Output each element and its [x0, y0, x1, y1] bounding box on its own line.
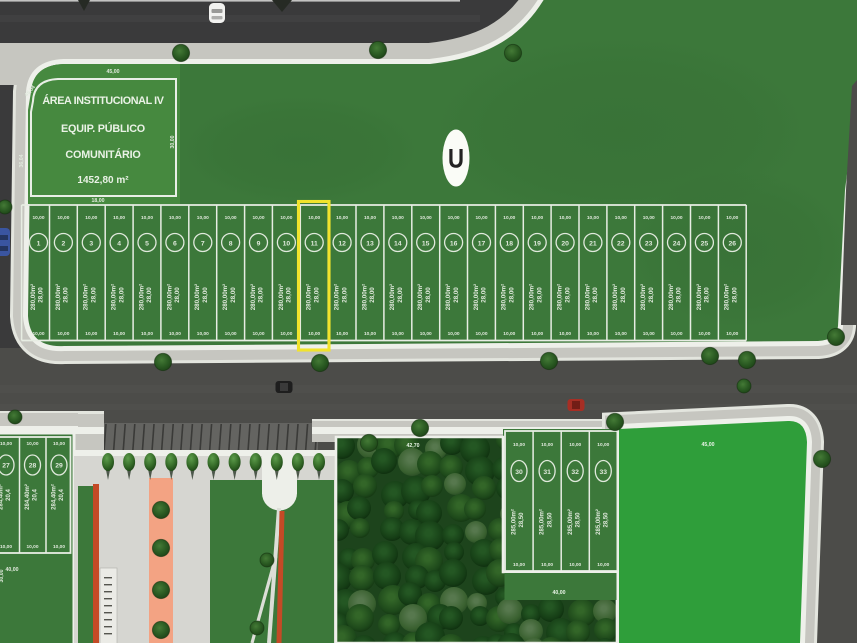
svg-text:28,00: 28,00 — [118, 287, 125, 303]
svg-text:30,00: 30,00 — [0, 569, 5, 582]
svg-text:280,00m²: 280,00m² — [612, 284, 619, 311]
svg-text:280,00m²: 280,00m² — [557, 284, 564, 311]
svg-text:280,00m²: 280,00m² — [584, 284, 591, 311]
svg-text:20,4: 20,4 — [6, 489, 12, 501]
svg-text:26: 26 — [729, 240, 737, 247]
svg-text:280,00m²: 280,00m² — [222, 284, 229, 311]
svg-text:10,00: 10,00 — [308, 331, 320, 337]
svg-text:28,00: 28,00 — [146, 287, 153, 303]
svg-text:24: 24 — [673, 240, 681, 247]
svg-text:10,00: 10,00 — [448, 331, 460, 337]
svg-text:10,00: 10,00 — [475, 331, 487, 337]
svg-text:25: 25 — [701, 240, 709, 247]
svg-text:280,00m²: 280,00m² — [306, 284, 313, 311]
svg-text:280,00m²: 280,00m² — [501, 284, 508, 311]
svg-text:280,00m²: 280,00m² — [278, 284, 285, 311]
svg-text:45,00: 45,00 — [702, 442, 715, 448]
svg-text:10,00: 10,00 — [280, 331, 292, 337]
svg-text:10,00: 10,00 — [252, 215, 264, 221]
svg-text:28,00: 28,00 — [63, 287, 70, 303]
svg-text:28,00: 28,00 — [676, 287, 683, 303]
svg-text:10,00: 10,00 — [559, 331, 571, 337]
svg-text:36,04: 36,04 — [19, 154, 25, 167]
svg-text:28,00: 28,00 — [453, 287, 460, 303]
svg-text:4: 4 — [117, 240, 121, 247]
svg-text:28,00: 28,00 — [91, 287, 98, 303]
svg-text:10,00: 10,00 — [141, 331, 153, 337]
svg-text:280,00m²: 280,00m² — [724, 284, 731, 311]
svg-text:10,00: 10,00 — [280, 215, 292, 221]
svg-text:40,00: 40,00 — [553, 590, 566, 596]
svg-text:28,00: 28,00 — [564, 287, 571, 303]
svg-text:10,00: 10,00 — [57, 215, 69, 221]
svg-text:280,00m²: 280,00m² — [111, 284, 118, 311]
svg-text:10,00: 10,00 — [392, 331, 404, 337]
svg-text:27: 27 — [2, 463, 10, 470]
svg-text:280,00m²: 280,00m² — [138, 284, 145, 311]
svg-text:10,00: 10,00 — [503, 215, 515, 221]
svg-text:28,00: 28,00 — [509, 287, 516, 303]
svg-text:10,00: 10,00 — [513, 442, 525, 448]
svg-text:10,00: 10,00 — [364, 215, 376, 221]
svg-text:10,00: 10,00 — [559, 215, 571, 221]
svg-text:280,00m²: 280,00m² — [473, 284, 480, 311]
svg-text:10,00: 10,00 — [85, 215, 97, 221]
svg-text:31: 31 — [543, 469, 551, 476]
svg-text:10,00: 10,00 — [252, 331, 264, 337]
svg-text:10,00: 10,00 — [503, 331, 515, 337]
svg-text:285,00m²: 285,00m² — [595, 509, 602, 535]
svg-text:28,00: 28,00 — [286, 287, 293, 303]
svg-text:10,00: 10,00 — [726, 215, 738, 221]
svg-text:28,00: 28,00 — [620, 287, 627, 303]
svg-text:10,00: 10,00 — [26, 441, 38, 447]
svg-text:28,00: 28,00 — [536, 287, 543, 303]
svg-text:14: 14 — [394, 240, 402, 247]
svg-text:20: 20 — [561, 240, 569, 247]
svg-text:10,00: 10,00 — [169, 215, 181, 221]
svg-text:10,00: 10,00 — [670, 331, 682, 337]
svg-text:20,4: 20,4 — [59, 489, 65, 501]
svg-text:10,00: 10,00 — [643, 215, 655, 221]
svg-text:28: 28 — [29, 463, 37, 470]
svg-text:10,00: 10,00 — [32, 215, 44, 221]
svg-text:10,00: 10,00 — [587, 215, 599, 221]
svg-text:10,00: 10,00 — [615, 215, 627, 221]
svg-text:8: 8 — [229, 240, 233, 247]
svg-text:10,00: 10,00 — [336, 331, 348, 337]
svg-text:10,00: 10,00 — [670, 215, 682, 221]
svg-text:280,00m²: 280,00m² — [194, 284, 201, 311]
svg-text:29: 29 — [55, 463, 63, 470]
svg-text:10,00: 10,00 — [53, 441, 65, 447]
svg-text:13: 13 — [366, 240, 374, 247]
svg-text:280,00m²: 280,00m² — [334, 284, 341, 311]
svg-text:1452,80 m²: 1452,80 m² — [77, 175, 129, 186]
svg-text:42,70: 42,70 — [407, 443, 420, 449]
svg-text:10,00: 10,00 — [57, 331, 69, 337]
svg-text:280,00m²: 280,00m² — [83, 284, 90, 311]
svg-text:10,00: 10,00 — [698, 331, 710, 337]
svg-text:28,50: 28,50 — [575, 512, 581, 528]
svg-text:6: 6 — [173, 240, 177, 247]
svg-text:15: 15 — [422, 240, 430, 247]
svg-text:10,00: 10,00 — [448, 215, 460, 221]
svg-text:28,00: 28,00 — [481, 287, 488, 303]
svg-text:1: 1 — [37, 240, 41, 247]
svg-text:280,00m²: 280,00m² — [30, 284, 37, 311]
svg-text:33: 33 — [600, 469, 608, 476]
svg-text:10,00: 10,00 — [32, 331, 44, 337]
svg-text:23: 23 — [645, 240, 653, 247]
svg-text:10,00: 10,00 — [336, 215, 348, 221]
svg-text:17: 17 — [478, 240, 486, 247]
svg-text:10,00: 10,00 — [569, 562, 581, 568]
svg-text:10,00: 10,00 — [85, 331, 97, 337]
svg-text:28,00: 28,00 — [704, 287, 711, 303]
svg-text:28,00: 28,00 — [258, 287, 265, 303]
svg-text:10: 10 — [283, 240, 291, 247]
svg-text:2: 2 — [62, 240, 66, 247]
svg-text:10,00: 10,00 — [698, 215, 710, 221]
svg-text:28,00: 28,00 — [313, 287, 320, 303]
svg-text:10,00: 10,00 — [615, 331, 627, 337]
svg-text:30,00: 30,00 — [170, 135, 176, 148]
svg-text:280,00m²: 280,00m² — [696, 284, 703, 311]
svg-text:45,00: 45,00 — [107, 69, 120, 75]
svg-text:32: 32 — [571, 469, 579, 476]
svg-text:9: 9 — [257, 240, 261, 247]
svg-text:10,00: 10,00 — [225, 215, 237, 221]
svg-text:10,00: 10,00 — [113, 215, 125, 221]
svg-text:10,00: 10,00 — [531, 331, 543, 337]
svg-text:285,00m²: 285,00m² — [567, 509, 574, 535]
svg-text:22: 22 — [617, 240, 625, 247]
svg-text:20,4: 20,4 — [33, 489, 39, 501]
svg-text:21: 21 — [589, 240, 597, 247]
svg-text:10,00: 10,00 — [420, 331, 432, 337]
svg-text:10,00: 10,00 — [0, 544, 12, 550]
svg-text:285,00m²: 285,00m² — [511, 509, 518, 535]
svg-text:280,00m²: 280,00m² — [417, 284, 424, 311]
svg-text:10,00: 10,00 — [597, 562, 609, 568]
svg-text:28,00: 28,00 — [369, 287, 376, 303]
svg-text:10,00: 10,00 — [597, 442, 609, 448]
svg-text:10,00: 10,00 — [587, 331, 599, 337]
svg-text:12: 12 — [338, 240, 346, 247]
svg-text:10,00: 10,00 — [0, 441, 12, 447]
svg-text:10,00: 10,00 — [726, 331, 738, 337]
svg-text:19: 19 — [533, 240, 541, 247]
svg-text:28,00: 28,00 — [341, 287, 348, 303]
svg-text:10,00: 10,00 — [531, 215, 543, 221]
svg-text:10,00: 10,00 — [308, 215, 320, 221]
svg-text:28,00: 28,00 — [202, 287, 209, 303]
svg-text:10,00: 10,00 — [420, 215, 432, 221]
svg-text:28,00: 28,00 — [38, 287, 45, 303]
svg-text:10,00: 10,00 — [141, 215, 153, 221]
svg-text:28,00: 28,00 — [174, 287, 181, 303]
svg-text:10,00: 10,00 — [475, 215, 487, 221]
svg-text:18,00: 18,00 — [92, 198, 105, 204]
svg-text:10,00: 10,00 — [225, 331, 237, 337]
svg-text:10,00: 10,00 — [169, 331, 181, 337]
svg-text:10,00: 10,00 — [541, 562, 553, 568]
svg-text:10,00: 10,00 — [197, 215, 209, 221]
svg-text:7: 7 — [201, 240, 205, 247]
svg-text:280,00m²: 280,00m² — [640, 284, 647, 311]
svg-text:10,00: 10,00 — [364, 331, 376, 337]
svg-text:285,00m²: 285,00m² — [539, 509, 546, 535]
svg-text:5: 5 — [145, 240, 149, 247]
svg-text:28,00: 28,00 — [592, 287, 599, 303]
svg-text:280,00m²: 280,00m² — [250, 284, 257, 311]
svg-text:280,00m²: 280,00m² — [55, 284, 62, 311]
svg-text:3: 3 — [89, 240, 93, 247]
svg-text:COMUNITÁRIO: COMUNITÁRIO — [65, 148, 140, 161]
svg-text:10,00: 10,00 — [513, 562, 525, 568]
svg-text:16: 16 — [450, 240, 458, 247]
svg-text:28,00: 28,00 — [648, 287, 655, 303]
svg-text:10,00: 10,00 — [569, 442, 581, 448]
svg-text:18: 18 — [506, 240, 514, 247]
svg-text:280,00m²: 280,00m² — [668, 284, 675, 311]
svg-text:28,00: 28,00 — [397, 287, 404, 303]
svg-text:280,00m²: 280,00m² — [445, 284, 452, 311]
svg-text:284,40m²: 284,40m² — [24, 484, 31, 510]
svg-text:40,00: 40,00 — [6, 567, 19, 573]
svg-text:284,40m²: 284,40m² — [51, 484, 58, 510]
svg-text:10,00: 10,00 — [26, 544, 38, 550]
svg-text:28,50: 28,50 — [604, 512, 610, 528]
svg-text:280,00m²: 280,00m² — [361, 284, 368, 311]
svg-text:280,00m²: 280,00m² — [389, 284, 396, 311]
svg-text:ÁREA INSTITUCIONAL IV: ÁREA INSTITUCIONAL IV — [42, 94, 164, 107]
svg-text:28,50: 28,50 — [547, 512, 553, 528]
svg-text:10,00: 10,00 — [53, 544, 65, 550]
svg-text:280,00m²: 280,00m² — [166, 284, 173, 311]
svg-text:10,00: 10,00 — [541, 442, 553, 448]
svg-text:EQUIP. PÚBLICO: EQUIP. PÚBLICO — [61, 122, 145, 135]
svg-text:U: U — [448, 145, 464, 175]
svg-text:10,00: 10,00 — [197, 331, 209, 337]
svg-text:10,00: 10,00 — [392, 215, 404, 221]
svg-text:28,00: 28,00 — [425, 287, 432, 303]
svg-text:28,00: 28,00 — [732, 287, 739, 303]
svg-text:10,00: 10,00 — [113, 331, 125, 337]
svg-text:30: 30 — [515, 469, 523, 476]
svg-text:11: 11 — [311, 240, 318, 247]
svg-text:280,00m²: 280,00m² — [529, 284, 536, 311]
svg-text:284,40m²: 284,40m² — [0, 484, 5, 510]
svg-text:28,00: 28,00 — [230, 287, 237, 303]
svg-text:28,50: 28,50 — [519, 512, 525, 528]
svg-text:10,00: 10,00 — [643, 331, 655, 337]
